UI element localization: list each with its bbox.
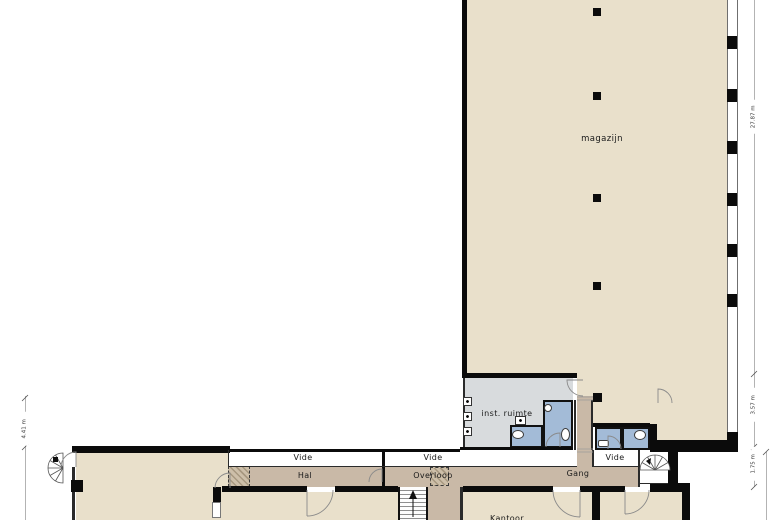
corridor-overloop-down (428, 487, 460, 520)
meter-panel-icon (463, 397, 472, 406)
spiral-stair-icon (48, 453, 63, 483)
column (593, 282, 601, 290)
room-bottom-right (600, 492, 682, 520)
column (593, 92, 601, 100)
wall (640, 483, 668, 484)
dimension-label-right-top: 27.87 m (751, 100, 757, 134)
wall (682, 487, 690, 520)
column (593, 8, 601, 16)
column (593, 393, 602, 402)
door-opening (212, 502, 221, 518)
room-label-inst-ruimte: inst. ruimte (457, 410, 557, 418)
straight-stair-icon (398, 487, 428, 520)
wall-pier (727, 244, 737, 257)
room-magazijn (466, 0, 728, 376)
wall (228, 450, 229, 467)
wall-pier (727, 89, 737, 102)
wall (592, 486, 600, 520)
wall (593, 423, 650, 427)
sink-icon (598, 440, 609, 447)
wall (574, 400, 576, 450)
wall (230, 449, 460, 452)
wall-pier (727, 432, 738, 452)
wall (213, 487, 221, 503)
wall-pier (71, 480, 83, 492)
room-label-vide-1: Vide (253, 454, 353, 462)
column (593, 194, 601, 202)
room-label-magazijn: magazijn (552, 135, 652, 144)
room-label-vide-3: Vide (565, 454, 665, 462)
elevator-shaft (228, 466, 250, 487)
toilet-icon (634, 430, 646, 440)
room-label-overloop: Overloop (383, 472, 483, 480)
wall-pier (727, 294, 737, 307)
room-label-gang: Gang (528, 470, 628, 478)
room-label-hal: Hal (255, 472, 355, 480)
floor-plan: magazijn inst. ruimte Vide Vide Vide Hal… (0, 0, 780, 520)
dimension-label-right-bottom: 1.75 m (751, 447, 757, 481)
wall (462, 373, 577, 378)
dimension-label-right-middle: 3.57 m (751, 388, 757, 422)
meter-panel-icon (463, 427, 472, 436)
wall (593, 466, 640, 467)
wall (460, 447, 573, 450)
wall (668, 452, 678, 485)
dimension-label-left: 4.41 m (22, 412, 28, 446)
room-bottom-middle (221, 492, 398, 520)
wall (580, 486, 625, 492)
wall (335, 486, 398, 492)
wall (591, 400, 593, 450)
room-left-wing (76, 453, 228, 520)
toilet-icon (512, 430, 524, 439)
wall (228, 466, 577, 467)
window-wall (727, 0, 738, 452)
wall-pier (727, 193, 737, 206)
wall (463, 486, 553, 492)
wall (462, 0, 467, 378)
toilet-icon (561, 428, 570, 441)
dimension-line (766, 452, 767, 520)
door-opening (70, 453, 76, 467)
wall (222, 486, 307, 492)
room-label-vide-2: Vide (383, 454, 483, 462)
wall (72, 446, 230, 453)
wall (650, 483, 668, 492)
room-label-kantoor: Kantoor (457, 515, 557, 520)
wall-pier (727, 141, 737, 154)
wall (650, 440, 738, 452)
wall-pier (727, 36, 737, 49)
